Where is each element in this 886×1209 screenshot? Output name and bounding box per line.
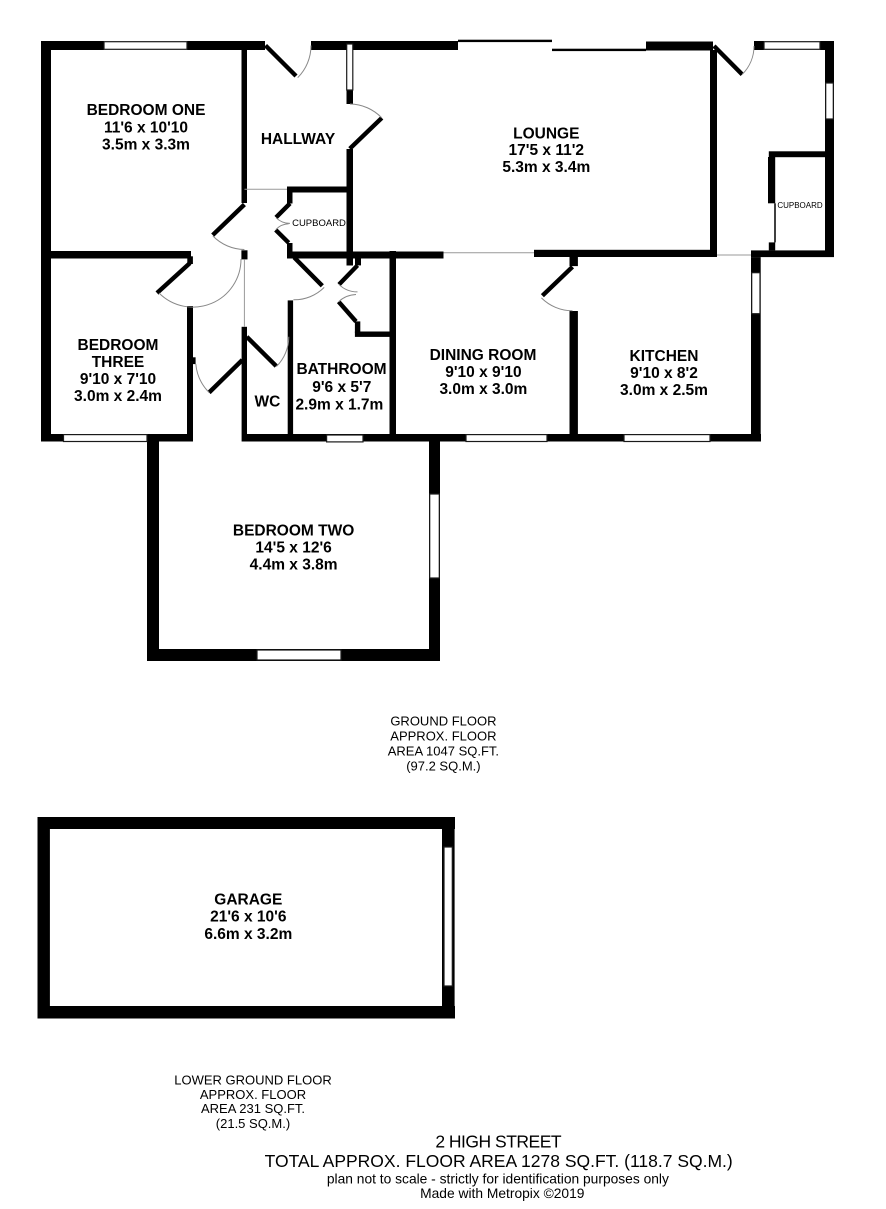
svg-text:11'6 x 10'10: 11'6 x 10'10 (104, 119, 188, 136)
svg-text:5.3m x 3.4m: 5.3m x 3.4m (502, 159, 590, 176)
svg-text:3.0m x 2.4m: 3.0m x 2.4m (74, 388, 162, 405)
svg-text:TOTAL APPROX. FLOOR AREA 1278: TOTAL APPROX. FLOOR AREA 1278 SQ.FT. (11… (265, 1151, 733, 1171)
svg-text:BATHROOM: BATHROOM (296, 361, 386, 378)
svg-text:AREA 1047 SQ.FT.: AREA 1047 SQ.FT. (388, 744, 499, 759)
svg-text:CUPBOARD: CUPBOARD (292, 218, 346, 229)
svg-text:APPROX. FLOOR: APPROX. FLOOR (200, 1087, 306, 1102)
svg-text:GROUND FLOOR: GROUND FLOOR (390, 714, 496, 729)
svg-text:2 HIGH STREET: 2 HIGH STREET (435, 1131, 562, 1151)
svg-text:KITCHEN: KITCHEN (630, 348, 699, 365)
svg-text:9'10 x 7'10: 9'10 x 7'10 (80, 371, 156, 388)
svg-text:LOUNGE: LOUNGE (513, 125, 579, 142)
svg-text:THREE: THREE (92, 354, 145, 371)
svg-text:APPROX. FLOOR: APPROX. FLOOR (390, 729, 496, 744)
svg-text:2.9m x 1.7m: 2.9m x 1.7m (295, 397, 383, 414)
svg-text:9'10 x 9'10: 9'10 x 9'10 (445, 364, 521, 381)
svg-text:BEDROOM: BEDROOM (78, 337, 159, 354)
svg-text:21'6 x 10'6: 21'6 x 10'6 (210, 909, 287, 926)
svg-text:BEDROOM ONE: BEDROOM ONE (87, 102, 206, 119)
svg-text:3.0m x 2.5m: 3.0m x 2.5m (620, 382, 708, 399)
svg-text:9'10 x 8'2: 9'10 x 8'2 (630, 365, 698, 382)
svg-text:(97.2 SQ.M.): (97.2 SQ.M.) (406, 758, 480, 773)
svg-text:BEDROOM TWO: BEDROOM TWO (233, 522, 354, 539)
svg-text:14'5 x 12'6: 14'5 x 12'6 (255, 540, 332, 557)
svg-text:DINING ROOM: DINING ROOM (430, 347, 537, 364)
svg-text:3.0m x 3.0m: 3.0m x 3.0m (439, 381, 527, 398)
svg-text:LOWER GROUND FLOOR: LOWER GROUND FLOOR (174, 1072, 331, 1087)
svg-text:9'6 x 5'7: 9'6 x 5'7 (312, 379, 371, 396)
svg-text:6.6m x 3.2m: 6.6m x 3.2m (204, 926, 292, 943)
svg-text:(21.5 SQ.M.): (21.5 SQ.M.) (216, 1116, 290, 1131)
svg-text:WC: WC (254, 394, 280, 411)
svg-text:3.5m x 3.3m: 3.5m x 3.3m (102, 137, 190, 154)
svg-text:HALLWAY: HALLWAY (261, 131, 336, 148)
svg-text:AREA 231 SQ.FT.: AREA 231 SQ.FT. (201, 1101, 305, 1116)
svg-text:17'5 x 11'2: 17'5 x 11'2 (509, 142, 584, 159)
svg-text:Made with Metropix ©2019: Made with Metropix ©2019 (420, 1186, 585, 1201)
svg-text:plan not to scale - strictly f: plan not to scale - strictly for identif… (327, 1171, 669, 1186)
svg-text:CUPBOARD: CUPBOARD (777, 201, 823, 210)
svg-text:GARAGE: GARAGE (214, 891, 282, 908)
svg-text:4.4m x 3.8m: 4.4m x 3.8m (250, 557, 338, 574)
